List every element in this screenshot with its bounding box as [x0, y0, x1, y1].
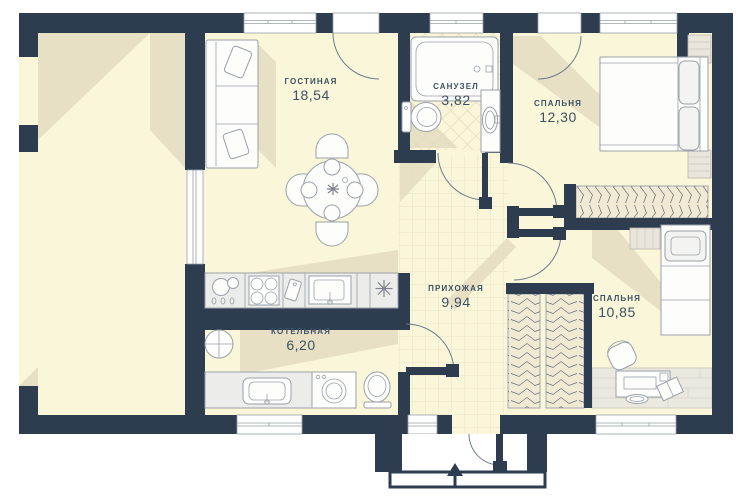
kitchen-sink-icon — [309, 276, 351, 304]
svg-text:12,30: 12,30 — [539, 109, 577, 125]
nightstand-icon — [688, 150, 711, 178]
bedroom1-terrace-door-icon — [538, 13, 581, 33]
bedroom1-wardrobe-icon — [576, 186, 708, 218]
entrance-door-leaf — [496, 434, 503, 464]
bathroom-window-icon — [430, 13, 483, 33]
toilet-icon — [364, 372, 391, 408]
entry-side-window-icon — [408, 415, 437, 434]
shelf-icon — [630, 228, 660, 249]
single-bed-icon — [661, 225, 710, 335]
boiler-icon — [205, 330, 233, 358]
laundry-sink-icon — [243, 378, 291, 404]
interior-window-icon — [187, 170, 203, 264]
double-bed-icon — [600, 57, 708, 151]
bedroom1-window-icon — [600, 13, 677, 33]
svg-text:САНУЗЕЛ: САНУЗЕЛ — [433, 82, 479, 91]
svg-text:ГОСТИНАЯ: ГОСТИНАЯ — [285, 77, 338, 86]
bathroom-sink-icon — [481, 90, 500, 152]
entrance-porch — [390, 434, 545, 488]
svg-text:10,85: 10,85 — [598, 304, 636, 320]
room-label-bedroom1: СПАЛЬНЯ 12,30 — [534, 99, 582, 125]
kitchen-counter-icon — [205, 273, 398, 308]
svg-text:СПАЛЬНЯ: СПАЛЬНЯ — [593, 294, 641, 303]
boiler-window-icon — [237, 415, 302, 434]
washing-machine-icon — [312, 372, 356, 408]
hallway-wardrobe-icon — [508, 294, 540, 408]
porch-floor — [402, 434, 527, 472]
stove-icon — [249, 276, 279, 305]
svg-text:ПРИХОЖАЯ: ПРИХОЖАЯ — [428, 284, 484, 293]
toilet-icon — [402, 102, 441, 132]
svg-text:3,82: 3,82 — [441, 92, 470, 108]
svg-text:6,20: 6,20 — [286, 337, 315, 353]
heater-asterisk-icon — [376, 280, 393, 297]
svg-text:9,94: 9,94 — [441, 294, 470, 310]
living-terrace-door-icon — [333, 13, 379, 33]
floor-plan-svg: ГОСТИНАЯ 18,54 САНУЗЕЛ 3,82 СПАЛЬНЯ 12,3… — [0, 0, 752, 502]
bedroom2-window-icon — [596, 415, 676, 434]
living-window-icon — [244, 13, 316, 33]
svg-text:СПАЛЬНЯ: СПАЛЬНЯ — [534, 99, 582, 108]
entrance-step — [390, 472, 545, 487]
sofa-icon — [206, 40, 258, 168]
room-label-bedroom2: СПАЛЬНЯ 10,85 — [593, 294, 641, 320]
svg-text:КОТЕЛЬНАЯ: КОТЕЛЬНАЯ — [271, 327, 331, 336]
bedroom2-wardrobe-icon — [546, 294, 584, 408]
svg-text:18,54: 18,54 — [292, 87, 330, 103]
bowl-icon — [626, 395, 648, 404]
room-label-living: ГОСТИНАЯ 18,54 — [285, 77, 338, 103]
floor-plan: ГОСТИНАЯ 18,54 САНУЗЕЛ 3,82 СПАЛЬНЯ 12,3… — [0, 0, 752, 502]
